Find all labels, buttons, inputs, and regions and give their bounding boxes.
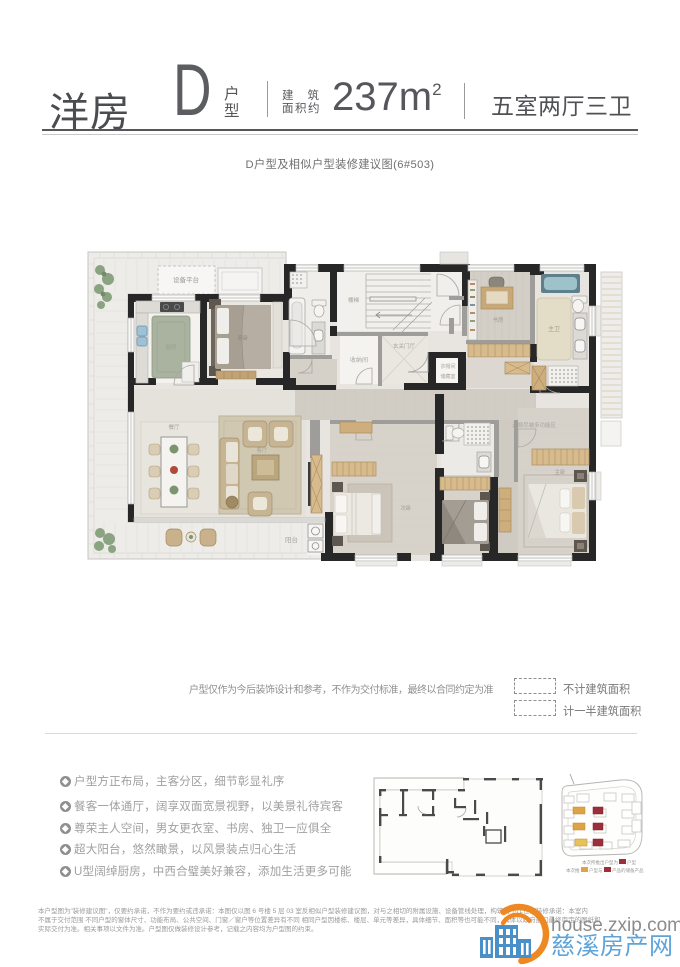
svg-text:走廊尽端多功能区: 走廊尽端多功能区 [512,421,557,429]
svg-text:设备平台: 设备平台 [173,275,199,284]
svg-text:户型与: 户型与 [589,867,603,874]
svg-text:本次所推出户型为: 本次所推出户型为 [582,859,618,866]
svg-text:玄关门厅: 玄关门厅 [393,342,416,350]
svg-text:阳台: 阳台 [285,535,298,544]
svg-text:客卧: 客卧 [237,334,249,342]
svg-text:主卧: 主卧 [554,468,566,476]
svg-text:楼梯: 楼梯 [348,296,360,304]
svg-text:户型: 户型 [627,859,636,866]
svg-text:客厅: 客厅 [256,446,268,454]
svg-text:慈溪房产网: 慈溪房产网 [551,933,674,960]
svg-text:餐厅: 餐厅 [168,423,180,431]
svg-text:储藏室: 储藏室 [440,373,455,380]
svg-text:主卫: 主卫 [548,325,560,333]
svg-text:本次推: 本次推 [566,867,580,874]
svg-text:书房: 书房 [492,316,504,324]
svg-text:衣帽间: 衣帽间 [440,363,455,370]
svg-text:次卧: 次卧 [400,504,412,512]
svg-text:厨房: 厨房 [165,343,177,351]
svg-text:收纳间: 收纳间 [350,356,368,364]
svg-text:产品的储备产品: 产品的储备产品 [612,867,644,874]
